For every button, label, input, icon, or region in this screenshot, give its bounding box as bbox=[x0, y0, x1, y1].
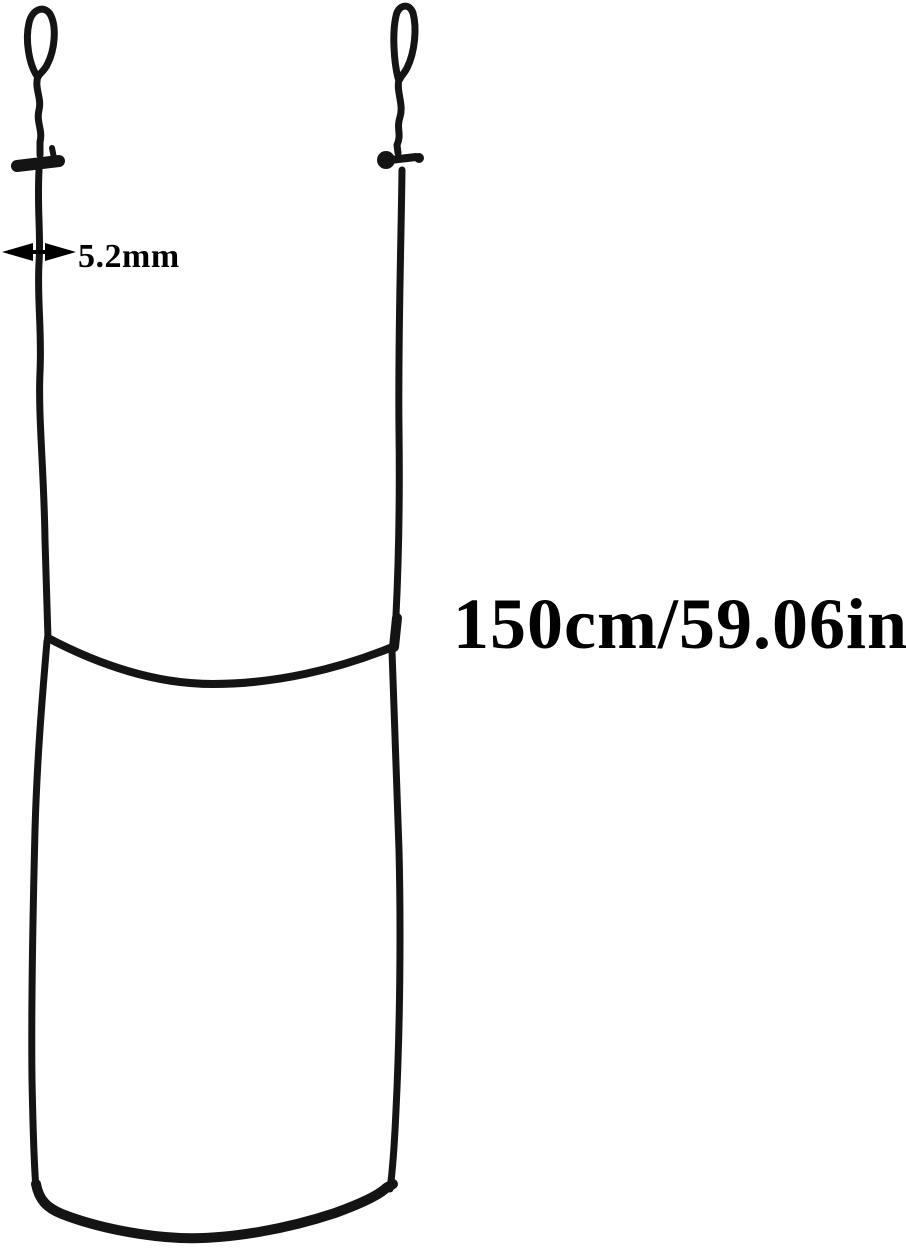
left-hanging-loop bbox=[27, 9, 54, 77]
left-toggle-knot bbox=[17, 161, 59, 166]
length-label: 150cm/59.06in bbox=[453, 588, 906, 660]
left-suspension-cord bbox=[38, 170, 48, 639]
right-toggle-knob-left bbox=[377, 151, 395, 169]
product-photo: 5.2mm 150cm/59.06in bbox=[0, 0, 906, 1248]
right-suspension-cord bbox=[393, 170, 402, 649]
middle-sag-cord bbox=[48, 638, 390, 684]
left-twist bbox=[37, 76, 41, 155]
right-toggle-knob-right bbox=[414, 153, 424, 163]
left-toggle-nub bbox=[52, 148, 54, 158]
thickness-label: 5.2mm bbox=[78, 240, 180, 274]
right-twist bbox=[397, 79, 401, 153]
bottom-cord bbox=[36, 1184, 393, 1238]
right-hanging-loop bbox=[394, 6, 415, 79]
right-junction-serving bbox=[394, 618, 397, 647]
right-side-cord bbox=[390, 651, 400, 1189]
left-side-cord bbox=[32, 641, 47, 1188]
